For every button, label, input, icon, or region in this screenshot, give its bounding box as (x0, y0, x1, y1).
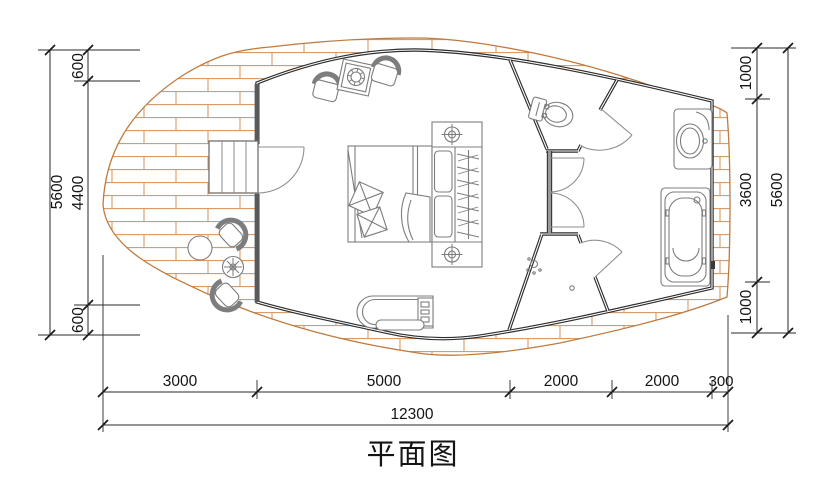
headboard-console (432, 122, 482, 267)
bed-throw (401, 193, 430, 242)
dim-left-seg-2: 600 (70, 307, 87, 333)
floor-plan-page: 5600 600 4400 600 1000 3600 1000 5600 30… (0, 0, 837, 496)
round-table (188, 236, 212, 260)
dim-bottom-seg-4: 300 (708, 373, 733, 390)
dim-bottom-seg-0: 3000 (163, 373, 198, 390)
dim-left-seg-1: 4400 (70, 175, 87, 210)
left-wall-panel-bottom (255, 194, 260, 302)
dim-right-seg-1: 3600 (738, 172, 755, 207)
bed (348, 146, 432, 242)
dim-left-total: 5600 (49, 174, 66, 209)
dim-right-seg-2: 1000 (738, 289, 755, 324)
washbasin-vanity (674, 109, 712, 169)
dim-bottom-seg-2: 2000 (544, 373, 579, 390)
dim-left-seg-0: 600 (70, 53, 87, 79)
flower-table (223, 257, 244, 278)
side-table (337, 59, 375, 96)
lounge-bolster (376, 320, 424, 330)
entry-steps (209, 141, 258, 193)
bathtub (661, 188, 710, 286)
dim-right-seg-0: 1000 (738, 55, 755, 90)
floor-plan-drawing: 5600 600 4400 600 1000 3600 1000 5600 30… (0, 0, 837, 496)
drawing-title: 平面图 (366, 439, 459, 471)
dim-bottom-total: 12300 (390, 406, 433, 423)
dim-bottom-seg-3: 2000 (645, 373, 680, 390)
lounge-daybed (357, 296, 433, 330)
dimensions-right: 1000 3600 1000 5600 (731, 43, 796, 338)
dim-bottom-seg-1: 5000 (367, 373, 402, 390)
dim-right-total: 5600 (769, 172, 786, 207)
left-wall-panel-top (255, 84, 260, 144)
